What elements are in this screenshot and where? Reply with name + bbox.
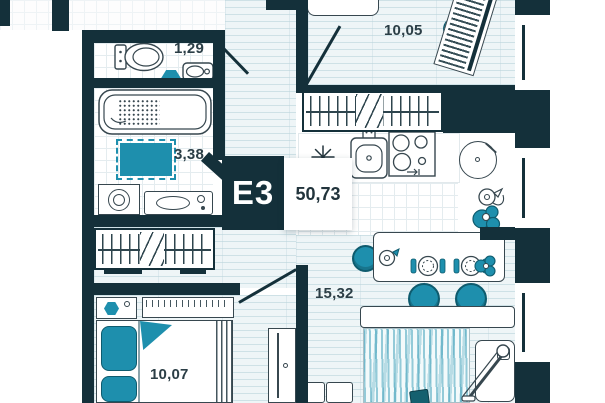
wall-wc-right [213,43,225,160]
desk [307,0,379,16]
wardrobe-track-dash [104,270,142,274]
total-area-plate: 50,73 [284,158,352,230]
window [515,283,550,362]
place-setting-icon [409,253,447,281]
wall-room-top-bottom [296,85,443,93]
hall-wardrobe [94,228,215,270]
vanity-sink [144,191,213,215]
window-glass-line [522,158,525,218]
bedroom-area-label: 10,07 [150,366,189,383]
wall-top-left-corner [0,0,10,26]
bathtub-shower-dots [118,99,160,127]
wc-area-label: 1,29 [174,40,204,57]
sofa-back [360,306,515,328]
floor-lamp-icon [458,342,512,403]
vanity-dot [201,206,205,210]
duvet-edge [138,321,140,402]
wall-bedroom-top [82,283,240,295]
plant-hexagon [104,302,119,315]
room-top-area-label: 10,05 [384,22,423,39]
outside-tile-floor [0,0,225,30]
round-table-center [475,157,480,162]
round-table [459,141,497,179]
bedroom-cabinet [268,328,296,403]
wall-top-stub [52,0,69,31]
window [515,15,550,90]
window-glass-line [522,293,525,352]
wardrobe-track-dash [180,270,206,274]
bath-mat [120,143,172,176]
wall-kitchen-right-stub [480,227,515,240]
nightstand-dot [124,301,130,307]
living-plant-icon [473,253,499,279]
kitchen-sink-icon [346,128,390,182]
total-area-value: 50,73 [295,184,340,205]
floor-plan: E3 50,73 1,29 3,38 10,05 15,32 10,07 [0,0,605,403]
stove-icon [387,130,437,178]
kitchen-living-area-label: 15,32 [315,285,354,302]
wall-bedroom-divider [296,265,308,403]
tv-stand-right [326,382,353,403]
unit-type-plate: E3 [222,156,284,230]
wall-wc-bath-divider [94,78,213,88]
bed-frame-lines [216,321,232,402]
pillow [101,326,137,371]
vanity-basin [156,196,190,210]
unit-type-label: E3 [232,174,274,212]
bed-shelf [142,297,234,318]
vanity-tap [197,195,205,203]
wall-bath-bottom [94,215,225,227]
window-glass-line [522,25,525,80]
jug-icon [377,246,401,270]
shelf-ticks [146,300,230,307]
cabinet-handle [283,363,288,368]
washer-drum-inner [113,194,125,206]
washing-machine [98,184,140,215]
toilet-icon [112,40,168,74]
window [515,148,550,228]
top-wardrobe [302,90,443,132]
cabinet-line [277,333,279,398]
wall-left-outer [82,30,94,403]
wall-corridor-right [296,10,308,88]
wall-corridor-stub [266,0,308,10]
coffee-table [409,389,430,403]
wall-kitchen-block [443,85,517,133]
pillow [101,376,137,402]
bathroom-area-label: 3,38 [174,146,204,163]
nightstand [96,297,137,319]
